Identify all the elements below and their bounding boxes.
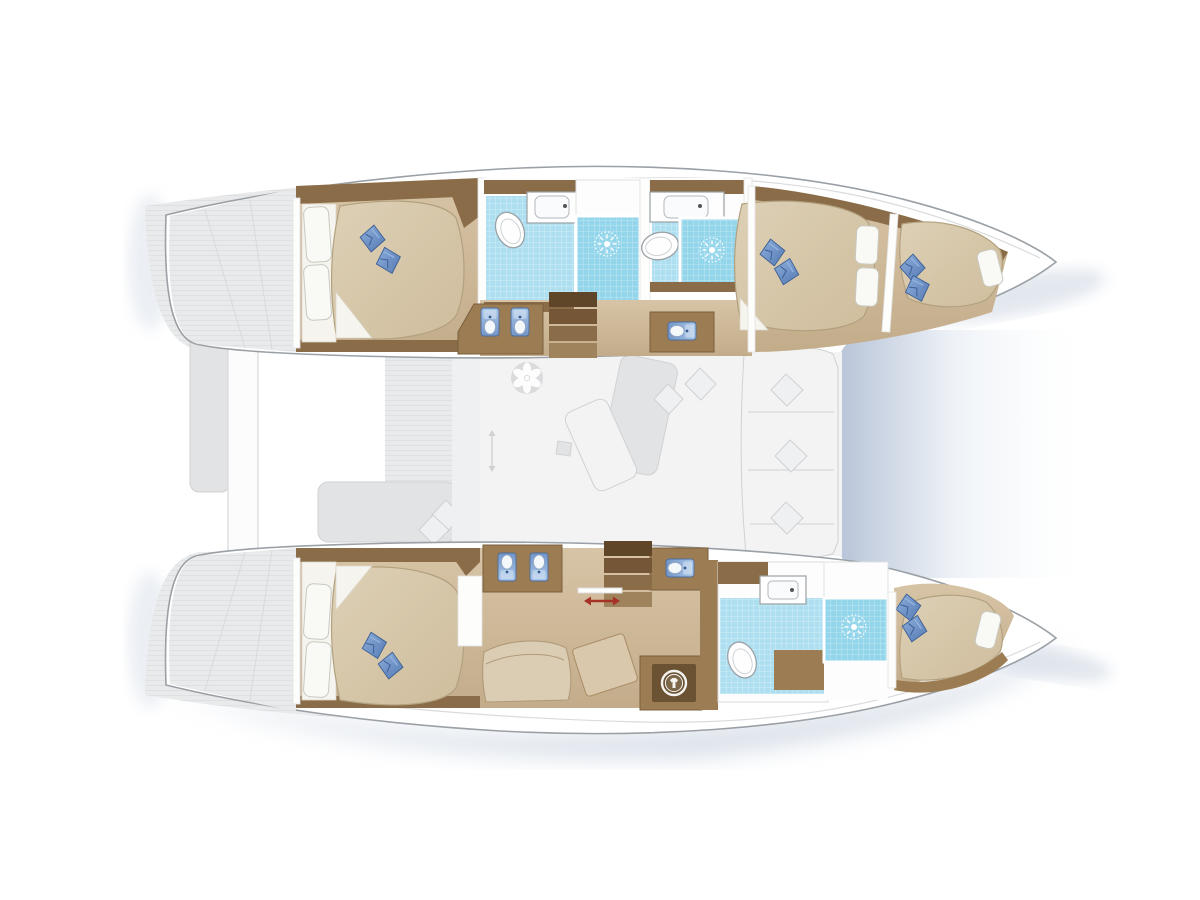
pillow (855, 225, 879, 264)
pillow (303, 641, 332, 698)
pillow (303, 206, 332, 263)
cabin-aft-starboard (293, 541, 708, 710)
saloon (452, 330, 842, 559)
washbasin-icon (530, 553, 548, 581)
counter-sink-icon (527, 192, 580, 223)
washbasin-icon (668, 322, 696, 340)
bathroom-starboard (700, 560, 888, 710)
catamaran-floor-plan (0, 0, 1200, 900)
double-bed (303, 201, 464, 339)
desk-unit (650, 548, 708, 590)
laundry-unit (640, 656, 702, 710)
bow-trampoline (836, 330, 1098, 578)
vanity-unit (458, 304, 543, 354)
cockpit-sofa (318, 482, 462, 545)
bathroom-port-aft (484, 178, 650, 308)
double-bed (303, 566, 464, 705)
shower-stall (824, 598, 888, 662)
washbasin-icon (666, 559, 694, 577)
double-bed (735, 201, 879, 331)
washing-machine-icon (662, 671, 686, 695)
pillow (303, 264, 332, 321)
ceiling-fan-icon (511, 362, 543, 394)
port-hull (166, 166, 1056, 358)
washbasin-icon (511, 308, 529, 336)
vanity-unit (483, 545, 562, 592)
cabin-aft-port (293, 178, 480, 352)
pillow (303, 583, 332, 640)
shower-stall (576, 216, 640, 304)
desk-unit (650, 312, 714, 352)
forward-bench (741, 347, 838, 559)
pillow (855, 267, 879, 306)
counter-sink-icon (760, 576, 806, 604)
cabin-forward-port (735, 186, 1008, 352)
cabin-sofa (483, 641, 571, 702)
washbasin-icon (481, 308, 499, 336)
washbasin-icon (498, 553, 516, 581)
